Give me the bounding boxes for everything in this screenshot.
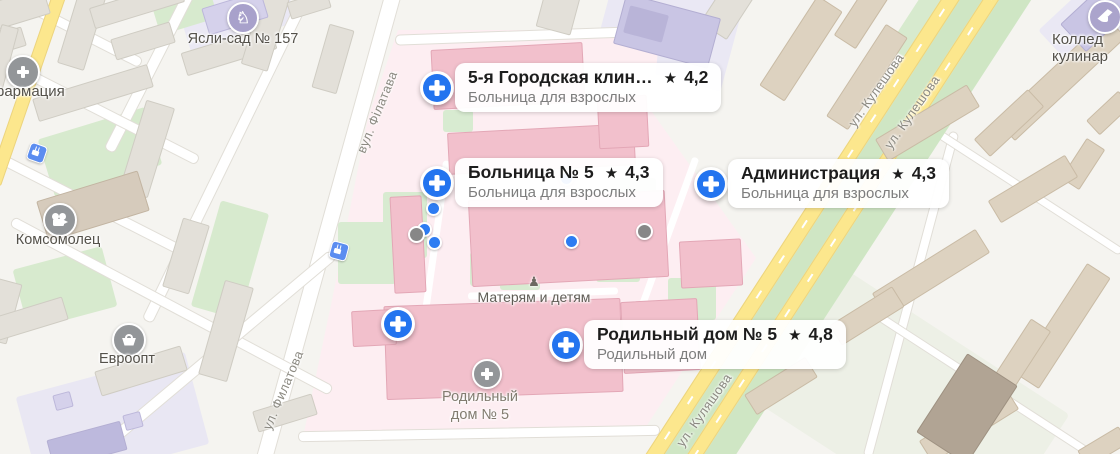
administration-pin[interactable] [694,167,728,201]
store-label[interactable]: Евроопт [99,351,155,367]
poi-dot-gray[interactable] [636,223,653,240]
campus-lawn [443,110,473,132]
kindergarten-label[interactable]: Ясли-сад № 157 [188,31,299,47]
building [286,0,331,20]
unlabeled-pin[interactable] [381,307,415,341]
place-title: Больница № 5 [468,162,594,183]
medical-plus-icon [474,361,500,387]
building [110,21,176,60]
poi-dot-blue[interactable] [427,235,442,250]
maternity-label[interactable]: Родильный дом № 5 [442,388,518,424]
place-rating: 4,3 [912,163,936,184]
place-subtitle: Больница для взрослых [468,184,650,201]
place-card-hospital-1[interactable]: 5-я Городская клин… ★ 4,2 Больница для в… [455,63,721,112]
college-poi[interactable] [1088,0,1120,34]
place-rating: 4,2 [684,67,708,88]
cinema-label[interactable]: Комсомолец [16,232,101,248]
building [311,24,354,95]
place-subtitle: Родильный дом [597,346,833,363]
medical-plus-icon [552,331,580,359]
pharmacy-label[interactable]: фармация [0,83,65,100]
place-card-hospital-5[interactable]: Больница № 5 ★ 4,3 Больница для взрослых [455,158,663,207]
place-subtitle: Больница для взрослых [741,185,936,202]
map-canvas[interactable]: вул. Філатава ул. Филатова ул. Кулешова … [0,0,1120,454]
place-subtitle: Больница для взрослых [468,89,708,106]
poi-dot-blue[interactable] [564,234,579,249]
place-rating: 4,3 [625,162,649,183]
maternity-label-line1: Родильный [442,389,518,405]
medical-plus-icon [423,74,451,102]
building [1086,91,1120,136]
college-label[interactable]: Коллед кулинар [1052,31,1108,65]
college-label-line1: Коллед [1052,31,1103,48]
star-icon: ★ [788,326,801,344]
place-title: 5-я Городская клин… [468,67,653,88]
maternity-label-line2: дом № 5 [451,407,509,423]
star-icon: ★ [891,165,904,183]
star-icon: ★ [664,69,677,87]
movie-camera-icon [51,213,69,227]
monument-label[interactable]: Матерям и детям [478,289,591,305]
college-label-line2: кулинар [1052,48,1108,65]
graduation-cap-icon [1096,10,1114,24]
hospital-building [679,238,743,288]
medical-plus-icon [697,170,725,198]
kindergarten-poi[interactable]: ♘ [227,2,259,34]
place-card-maternity[interactable]: Родильный дом № 5 ★ 4,8 Родильный дом [584,320,846,369]
shopping-basket-icon [121,334,137,347]
place-title: Администрация [741,163,880,184]
place-rating: 4,8 [809,324,833,345]
building [759,0,842,102]
hospital-pin-1[interactable] [420,71,454,105]
hospital-building [389,195,426,294]
monument-icon: ♟ [528,274,540,290]
hospital-pin-2[interactable] [420,166,454,200]
place-title: Родильный дом № 5 [597,324,777,345]
poi-dot-blue[interactable] [426,201,441,216]
maternity-poi[interactable] [472,359,502,389]
medical-plus-icon [423,169,451,197]
place-card-administration[interactable]: Администрация ★ 4,3 Больница для взрослы… [728,159,949,208]
trolleybus-pole-icon [37,147,40,151]
medical-plus-icon [384,310,412,338]
star-icon: ★ [605,164,618,182]
poi-dot-gray[interactable] [408,226,425,243]
building [1077,426,1120,454]
rocking-horse-icon: ♘ [236,8,250,28]
maternity-pin[interactable] [549,328,583,362]
